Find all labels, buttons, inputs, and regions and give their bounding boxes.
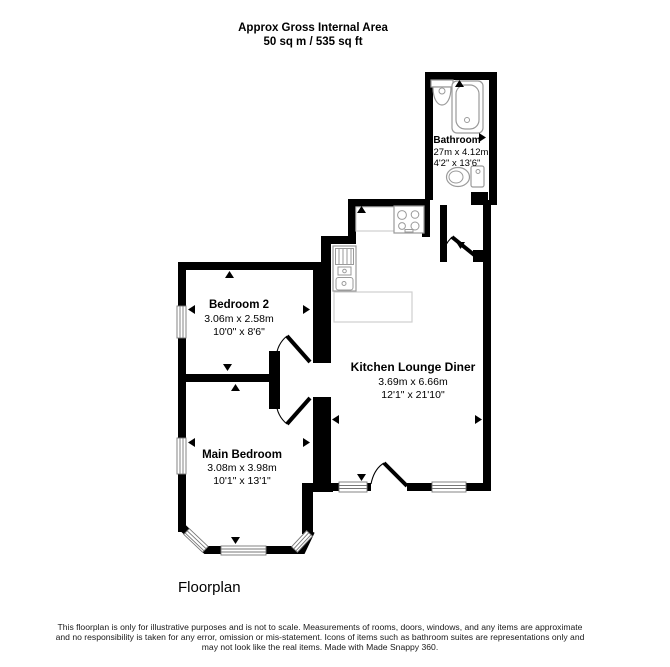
page-title-line2: 50 sq m / 535 sq ft [263,36,362,48]
bedroom2-metric: 3.06m x 2.58m [204,313,274,325]
bedroom2-imperial: 10'0" x 8'6" [213,326,265,338]
main-bedroom-imperial: 10'1" x 13'1" [213,475,271,487]
room-label-bathroom: Bathroom 1.27m x 4.12m 4'2" x 13'6" [426,135,489,169]
disclaimer-line3: may not look like the real items. Made w… [202,642,438,652]
window-kld-bottom-right [432,482,466,492]
window-bay-center [221,546,266,555]
bathroom-imperial: 4'2" x 13'6" [434,158,481,169]
disclaimer-line2: and no responsibility is taken for any e… [56,632,585,642]
main-bedroom-metric: 3.08m x 3.98m [207,462,277,474]
room-label-bedroom2: Bedroom 2 3.06m x 2.58m 10'0" x 8'6" [204,299,274,338]
main-bedroom-name: Main Bedroom [202,449,282,461]
bathtub-icon [452,81,483,133]
window-bedroom2-left [177,306,186,338]
toilet-icon [447,166,485,187]
bathroom-metric: 1.27m x 4.12m [426,147,489,158]
floorplan-caption: Floorplan [178,579,241,596]
bedroom2-name: Bedroom 2 [209,299,269,311]
page-background [0,0,670,667]
page-title-line1: Approx Gross Internal Area [238,22,388,34]
window-kld-bottom-left [339,482,367,492]
bathroom-name: Bathroom [433,135,480,146]
kld-metric: 3.69m x 6.66m [378,376,448,388]
disclaimer-line1: This floorplan is only for illustrative … [58,622,583,632]
hob-icon [394,206,424,233]
window-main-bedroom-left [177,438,186,474]
floorplan-canvas: Approx Gross Internal Area 50 sq m / 535… [0,0,670,667]
kld-name: Kitchen Lounge Diner [351,360,476,374]
kitchen-sink-icon [333,246,356,291]
room-label-main-bedroom: Main Bedroom 3.08m x 3.98m 10'1" x 13'1" [202,449,282,487]
kld-imperial: 12'1" x 21'10" [381,389,445,401]
